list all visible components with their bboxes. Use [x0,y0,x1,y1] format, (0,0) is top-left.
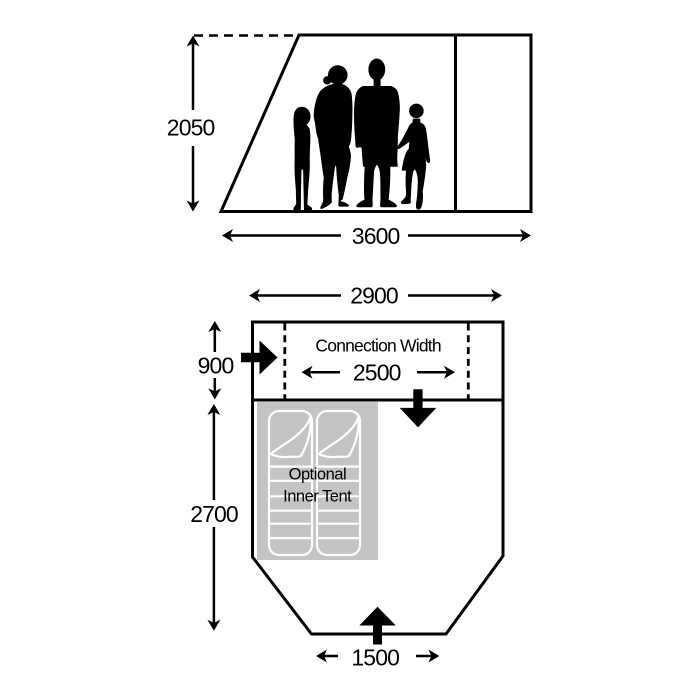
svg-text:900: 900 [198,353,234,379]
svg-text:Connection Width: Connection Width [315,335,440,355]
svg-text:2050: 2050 [167,115,215,141]
svg-text:2700: 2700 [190,501,238,527]
svg-text:2500: 2500 [353,360,401,386]
svg-text:3600: 3600 [352,223,400,249]
svg-text:2900: 2900 [350,282,398,308]
svg-text:Optional: Optional [289,466,346,484]
svg-text:1500: 1500 [351,644,399,670]
svg-text:Inner Tent: Inner Tent [283,488,352,506]
